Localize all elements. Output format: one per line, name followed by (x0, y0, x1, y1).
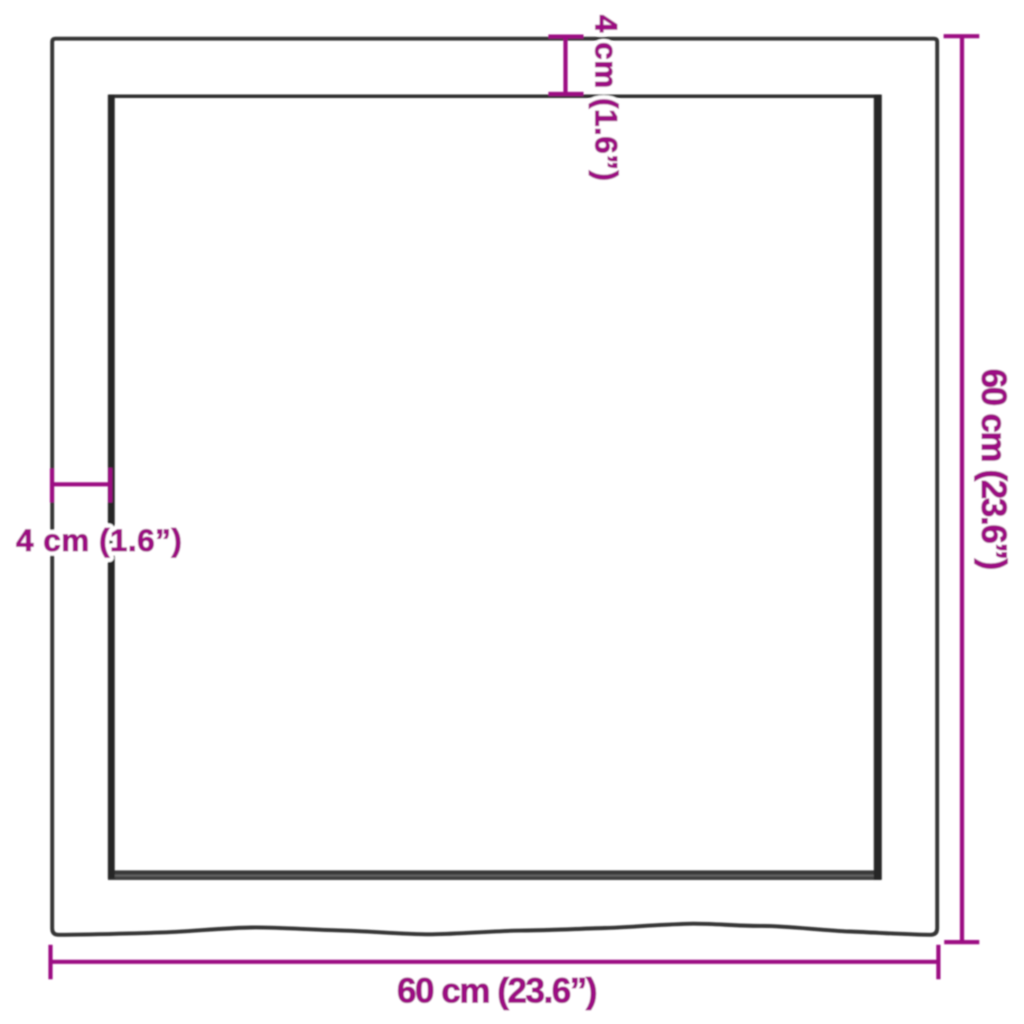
svg-text:60 cm (23.6”): 60 cm (23.6”) (974, 369, 1013, 569)
svg-text:60 cm (23.6”): 60 cm (23.6”) (397, 971, 596, 1010)
svg-text:4 cm (1.6”): 4 cm (1.6”) (589, 15, 625, 182)
svg-text:4 cm (1.6”): 4 cm (1.6”) (16, 522, 182, 558)
